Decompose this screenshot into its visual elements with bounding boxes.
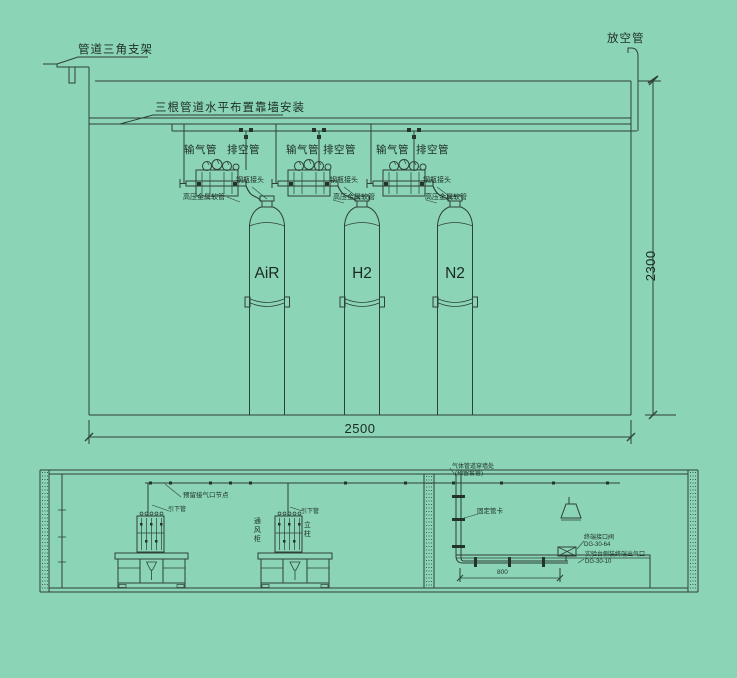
room-outline — [89, 67, 631, 415]
exhaust-pipe-label: 排空管 — [323, 145, 356, 156]
supply-pipe-label: 输气管 — [184, 145, 217, 156]
exhaust-pipe-label: 排空管 — [227, 145, 260, 156]
supply-pipe-label: 输气管 — [286, 145, 319, 156]
pipe-clamp-label: 固定管卡 — [477, 509, 503, 516]
column-label: 立柱 — [303, 521, 310, 539]
width-dimension: 2500 — [330, 422, 390, 436]
bench-outlet-code: DG-30-10 — [585, 559, 611, 565]
metal-hose-label: 高压金属软管 — [333, 194, 375, 201]
metal-hose-label: 高压金属软管 — [425, 194, 467, 201]
cylinder-gas-label: H2 — [342, 266, 382, 282]
wall-sleeve-label: (预留套管) — [455, 471, 483, 477]
lower-walls — [40, 470, 698, 592]
cylinder-connector-label: 钢瓶接头 — [423, 177, 451, 184]
pipes-label: 三根管道水平布置靠墙安装 — [155, 102, 305, 114]
supply-pipe-label: 输气管 — [376, 145, 409, 156]
pipe-run-dimension: 800 — [497, 570, 508, 577]
wall-bracket — [43, 57, 148, 83]
cylinder-connector-label: 钢瓶接头 — [236, 177, 264, 184]
bench-outlet-label: 实验台侧装终端出气口 — [585, 552, 645, 558]
downpipe-label: 引下管 — [301, 509, 319, 515]
downpipe-label: 引下管 — [168, 507, 186, 513]
exhaust-funnel-icon — [561, 497, 581, 520]
gas-cylinder — [245, 196, 478, 415]
bracket-label: 管道三角支架 — [78, 44, 153, 56]
cad-drawing-canvas: 管道三角支架 三根管道水平布置靠墙安装 放空管 输气管 排空管 输气管 排空管 … — [0, 0, 737, 678]
cylinder-gas-label: N2 — [435, 266, 475, 282]
height-dimension: 2300 — [644, 244, 658, 288]
drawing-linework — [0, 0, 737, 678]
fume-hood-label: 通风柜 — [253, 517, 260, 544]
vent-label: 放空管 — [607, 33, 645, 45]
cylinder-gas-label: AiR — [247, 266, 287, 282]
exhaust-pipe-label: 排空管 — [416, 145, 449, 156]
metal-hose-label: 高压金属软管 — [183, 194, 225, 201]
lab-bench — [115, 553, 332, 588]
supply-pipes — [89, 115, 637, 131]
terminal-valve-label: 终端接口阀 — [584, 535, 614, 541]
gas-rack — [137, 512, 302, 552]
right-bench — [456, 555, 650, 588]
tee-fitting — [239, 128, 421, 139]
cylinder-connector-label: 钢瓶接头 — [330, 177, 358, 184]
ceiling-pipe-label: 预留接气口节点 — [183, 493, 229, 500]
right-pipe-dimension — [457, 568, 563, 582]
terminal-valve-code: DG-30-64 — [584, 542, 610, 548]
wall-sleeve-label: 气体管道穿墙处 — [452, 464, 494, 470]
